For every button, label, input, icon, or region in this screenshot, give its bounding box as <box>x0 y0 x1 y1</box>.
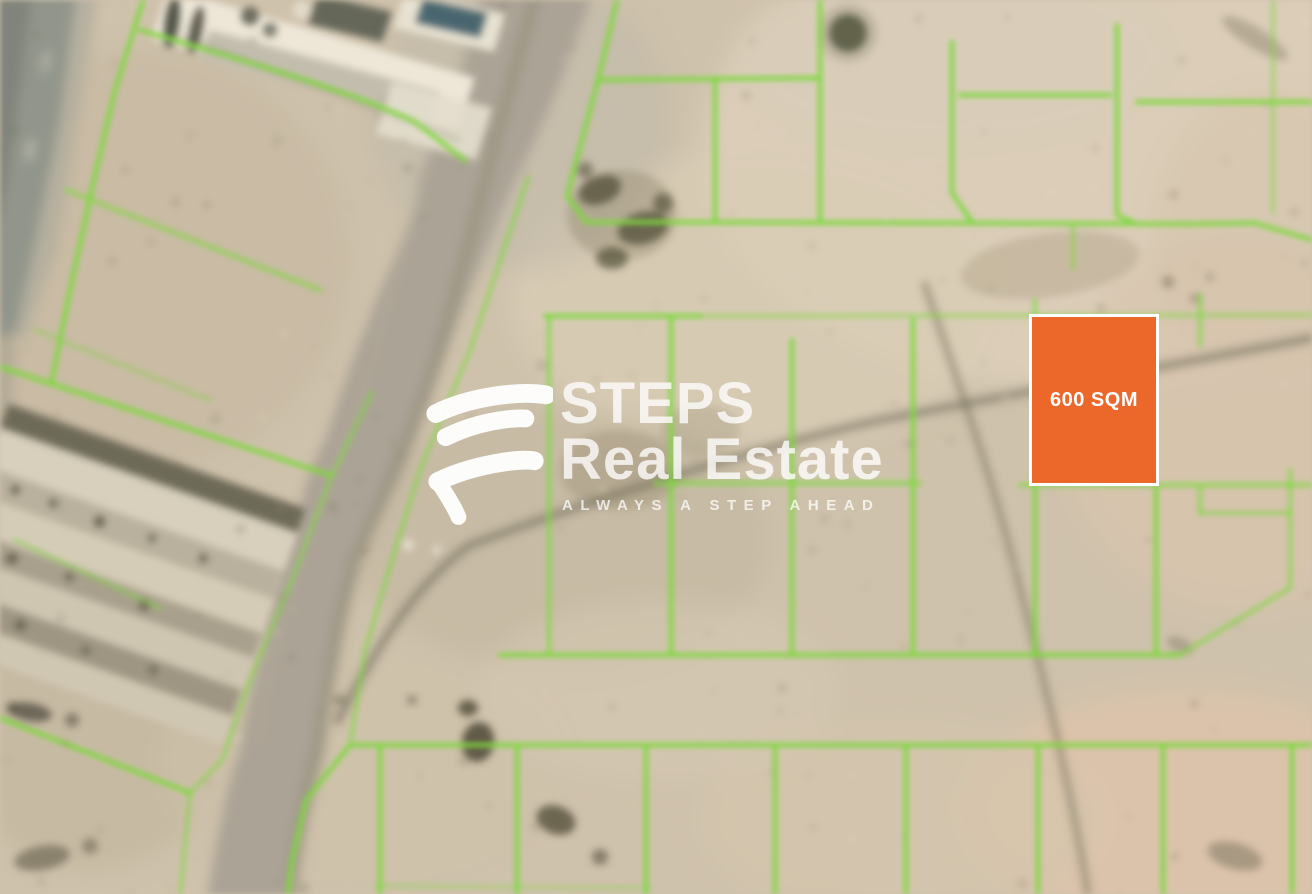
plot-area-label: 600 SQM <box>1050 389 1138 412</box>
satellite-map: STEPS Real Estate ALWAYS A STEP AHEAD 60… <box>0 0 1312 894</box>
highlighted-plot: 600 SQM <box>1029 314 1159 486</box>
